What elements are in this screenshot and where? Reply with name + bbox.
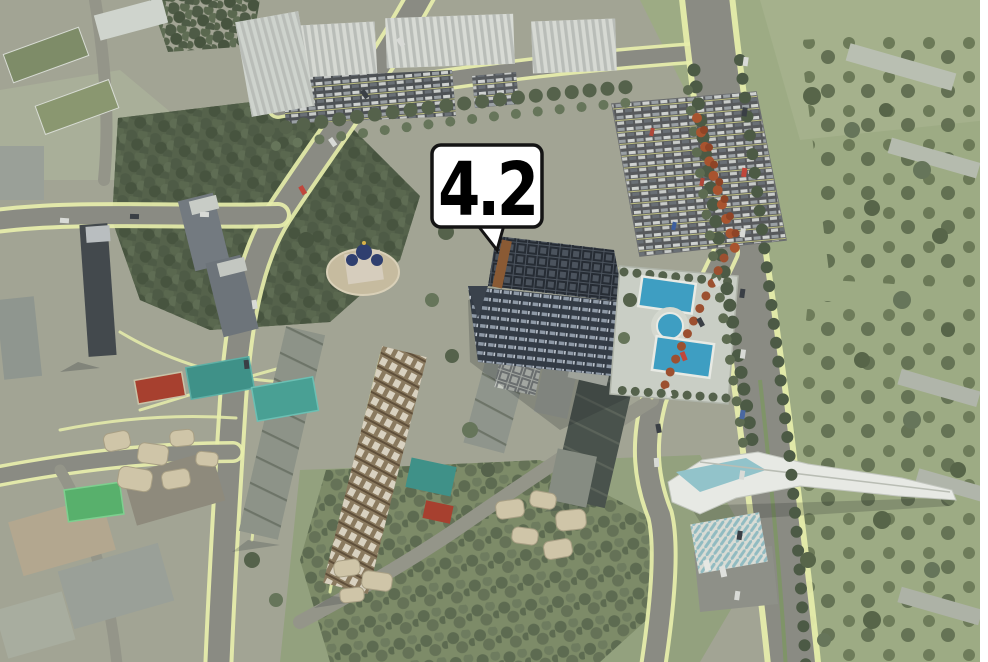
border-strip-right [980, 0, 988, 662]
church-dome-right [371, 254, 383, 266]
pool-complex [610, 266, 738, 404]
map-canvas: 4.2 [0, 0, 988, 662]
residential-slab-top-3 [531, 19, 617, 74]
block-left-edge-1 [0, 146, 44, 200]
residential-slab-top-2 [385, 14, 515, 68]
church-cross-gold [362, 241, 366, 245]
church-dome-left [346, 254, 358, 266]
marker-label: 4.2 [438, 146, 536, 232]
marker-label-wrap: 4.2 [438, 146, 536, 232]
aerial-masterplan-render: 4.2 [0, 0, 988, 662]
pool-round [657, 313, 683, 339]
church-dome-center [356, 244, 372, 260]
playground-green [64, 482, 124, 521]
